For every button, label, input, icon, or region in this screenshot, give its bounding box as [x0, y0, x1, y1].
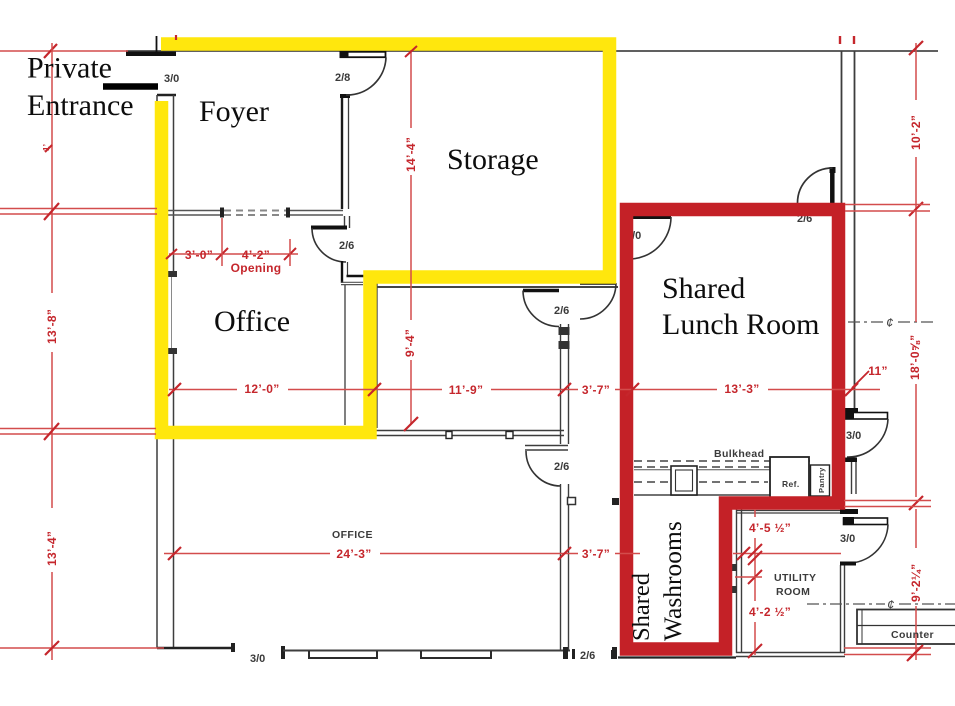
- svg-text:Ref.: Ref.: [782, 479, 800, 489]
- svg-text:2/6: 2/6: [554, 305, 569, 317]
- svg-text:ROOM: ROOM: [776, 586, 810, 598]
- svg-text:2/6: 2/6: [554, 461, 569, 473]
- svg-text:Entrance: Entrance: [27, 89, 134, 122]
- svg-text:Pantry: Pantry: [817, 467, 826, 493]
- svg-text:3’-7”: 3’-7”: [582, 547, 610, 561]
- svg-text:13’-8”: 13’-8”: [45, 309, 59, 344]
- svg-text:11’-9”: 11’-9”: [449, 383, 484, 397]
- svg-text:Lunch Room: Lunch Room: [662, 308, 820, 341]
- svg-text:2/6: 2/6: [580, 650, 595, 662]
- svg-text:Shared: Shared: [662, 272, 745, 305]
- svg-text:¢: ¢: [886, 315, 893, 330]
- svg-text:11”: 11”: [868, 364, 888, 378]
- svg-text:9’-2¼”: 9’-2¼”: [909, 564, 923, 603]
- svg-text:UTILITY: UTILITY: [774, 572, 816, 584]
- svg-text:4’-2 ½”: 4’-2 ½”: [749, 605, 791, 619]
- svg-text:¢: ¢: [887, 597, 894, 612]
- svg-text:Opening: Opening: [231, 261, 282, 275]
- svg-text:Office: Office: [214, 305, 290, 338]
- svg-text:18’-0⅝”: 18’-0⅝”: [908, 335, 922, 380]
- svg-text:3/0: 3/0: [840, 533, 855, 545]
- svg-text:2/8: 2/8: [335, 72, 350, 84]
- svg-text:14’-4”: 14’-4”: [404, 137, 418, 172]
- svg-text:12’-0”: 12’-0”: [244, 382, 279, 396]
- svg-text:3’-0”: 3’-0”: [185, 248, 213, 262]
- svg-text:Counter: Counter: [891, 629, 934, 641]
- svg-text:3/0: 3/0: [846, 430, 861, 442]
- svg-text:Private: Private: [27, 52, 112, 85]
- svg-text:OFFICE: OFFICE: [332, 529, 373, 541]
- svg-text:Washrooms: Washrooms: [658, 521, 687, 641]
- svg-text:2/6: 2/6: [339, 240, 354, 252]
- svg-text:13’-4”: 13’-4”: [45, 531, 59, 566]
- svg-text:Bulkhead: Bulkhead: [714, 448, 764, 460]
- svg-text:4’-5 ½”: 4’-5 ½”: [749, 521, 791, 535]
- svg-text:3/0: 3/0: [250, 653, 265, 665]
- svg-text:Storage: Storage: [447, 143, 539, 176]
- svg-text:3’-7”: 3’-7”: [582, 383, 610, 397]
- svg-text:24’-3”: 24’-3”: [336, 547, 371, 561]
- svg-text:Foyer: Foyer: [199, 95, 269, 128]
- svg-text:10’-2”: 10’-2”: [909, 115, 923, 150]
- svg-text:1’: 1’: [42, 144, 51, 151]
- svg-text:13’-3”: 13’-3”: [724, 382, 759, 396]
- svg-text:Shared: Shared: [628, 573, 655, 641]
- svg-text:4’-2”: 4’-2”: [242, 248, 270, 262]
- svg-text:9’-4”: 9’-4”: [403, 329, 417, 357]
- svg-text:3/0: 3/0: [164, 73, 179, 85]
